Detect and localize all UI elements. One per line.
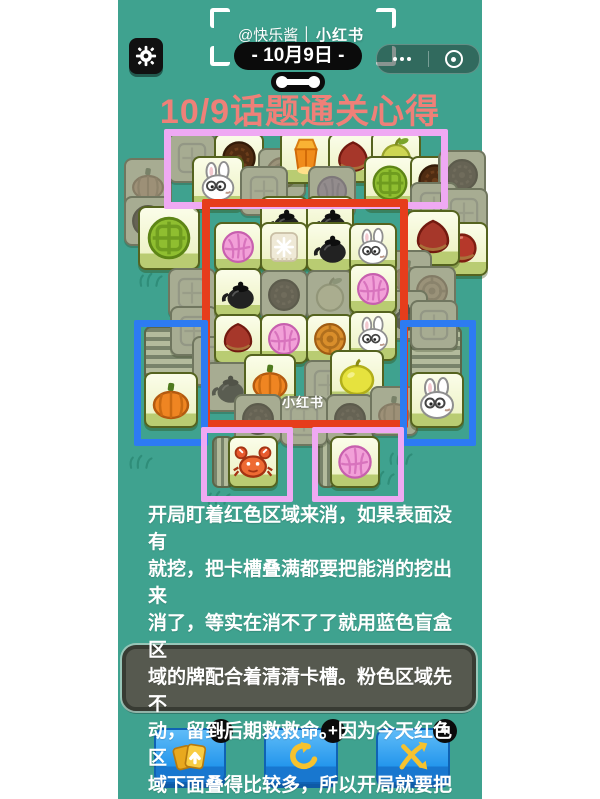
tile-green[interactable] bbox=[138, 206, 200, 270]
tile-white[interactable] bbox=[260, 222, 308, 272]
tile-crab[interactable] bbox=[228, 436, 278, 488]
tile-green[interactable] bbox=[364, 156, 416, 210]
grass-doodle bbox=[136, 268, 170, 290]
gear-icon bbox=[135, 45, 157, 67]
bone-icon bbox=[271, 72, 325, 92]
more-dots-icon bbox=[407, 57, 411, 61]
grass-doodle bbox=[126, 450, 160, 472]
tile-pink[interactable] bbox=[330, 436, 380, 488]
tile-teapot[interactable] bbox=[214, 268, 262, 318]
more-button[interactable] bbox=[377, 45, 428, 73]
frame-corner-icon bbox=[210, 46, 230, 66]
tile-pumpkin[interactable] bbox=[144, 372, 198, 428]
tile-blank bbox=[410, 300, 458, 350]
guide-text: 开局盯着红色区域来消，如果表面没有 就挖，把卡槽叠满都要把能消的挖出来 消了，等… bbox=[148, 502, 460, 799]
tile-pink[interactable] bbox=[349, 264, 397, 314]
exit-button[interactable] bbox=[429, 45, 480, 73]
miniprogram-capsule bbox=[376, 44, 480, 74]
target-circle-icon bbox=[445, 50, 463, 68]
more-dots-icon bbox=[393, 57, 397, 61]
post-image-column: @快乐酱 │ 小红书 - 10月9日 - 10/9话题通关心得 小红书 开局盯着… bbox=[118, 0, 482, 799]
tile-teapot[interactable] bbox=[306, 222, 354, 272]
screenshot-canvas: @快乐酱 │ 小红书 - 10月9日 - 10/9话题通关心得 小红书 开局盯着… bbox=[0, 0, 600, 799]
tile-rabbit[interactable] bbox=[410, 372, 464, 428]
board-watermark: 小红书 bbox=[282, 392, 324, 411]
tile-rabbit[interactable] bbox=[192, 156, 244, 210]
settings-button[interactable] bbox=[129, 38, 163, 74]
tile-pink[interactable] bbox=[214, 222, 262, 272]
tile-choco bbox=[260, 270, 308, 320]
date-badge: - 10月9日 - bbox=[234, 42, 362, 70]
tile-pomelo bbox=[306, 270, 354, 320]
grass-doodle bbox=[386, 446, 420, 468]
more-dots-icon bbox=[400, 57, 404, 61]
